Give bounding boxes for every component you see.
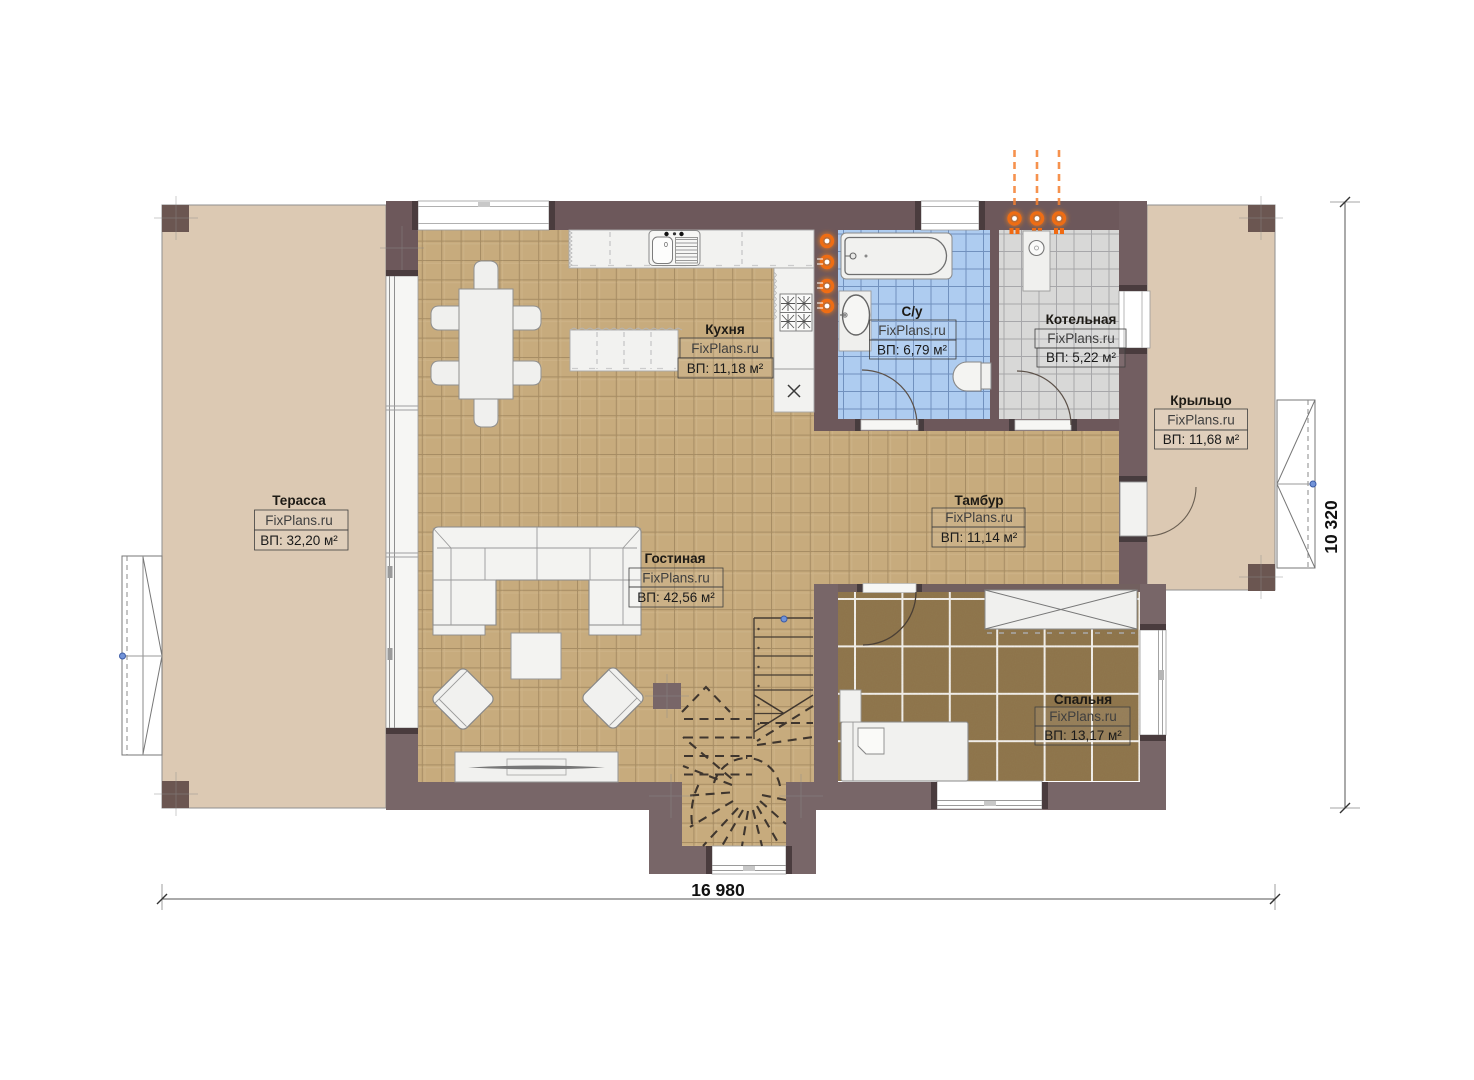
svg-text:FixPlans.ru: FixPlans.ru: [1049, 709, 1117, 724]
svg-text:Кухня: Кухня: [705, 322, 744, 337]
svg-text:FixPlans.ru: FixPlans.ru: [691, 341, 759, 356]
svg-text:FixPlans.ru: FixPlans.ru: [1047, 331, 1115, 346]
svg-text:10 320: 10 320: [1321, 500, 1341, 554]
svg-text:Крыльцо: Крыльцо: [1170, 393, 1231, 408]
svg-text:Терасса: Терасса: [272, 493, 326, 508]
svg-text:0: 0: [664, 242, 668, 249]
svg-text:16 980: 16 980: [691, 880, 745, 900]
svg-text:FixPlans.ru: FixPlans.ru: [642, 571, 710, 586]
svg-text:ВП: 13,17 м²: ВП: 13,17 м²: [1044, 728, 1122, 743]
svg-text:FixPlans.ru: FixPlans.ru: [945, 510, 1013, 525]
svg-text:ВП: 11,68 м²: ВП: 11,68 м²: [1163, 432, 1240, 447]
svg-text:Спальня: Спальня: [1054, 692, 1112, 707]
svg-text:FixPlans.ru: FixPlans.ru: [1167, 413, 1235, 428]
svg-text:С/у: С/у: [901, 304, 923, 319]
svg-text:ВП: 5,22 м²: ВП: 5,22 м²: [1046, 350, 1117, 365]
svg-text:ВП: 11,14 м²: ВП: 11,14 м²: [941, 530, 1018, 545]
svg-text:ВП: 11,18 м²: ВП: 11,18 м²: [687, 361, 764, 376]
svg-text:FixPlans.ru: FixPlans.ru: [265, 513, 333, 528]
svg-text:Тамбур: Тамбур: [955, 493, 1004, 508]
svg-text:ВП: 42,56 м²: ВП: 42,56 м²: [637, 590, 715, 605]
svg-text:ВП: 6,79 м²: ВП: 6,79 м²: [877, 343, 948, 358]
svg-text:ВП: 32,20 м²: ВП: 32,20 м²: [260, 533, 338, 548]
svg-text:Гостиная: Гостиная: [644, 551, 705, 566]
svg-text:Котельная: Котельная: [1046, 312, 1117, 327]
svg-text:FixPlans.ru: FixPlans.ru: [878, 323, 946, 338]
